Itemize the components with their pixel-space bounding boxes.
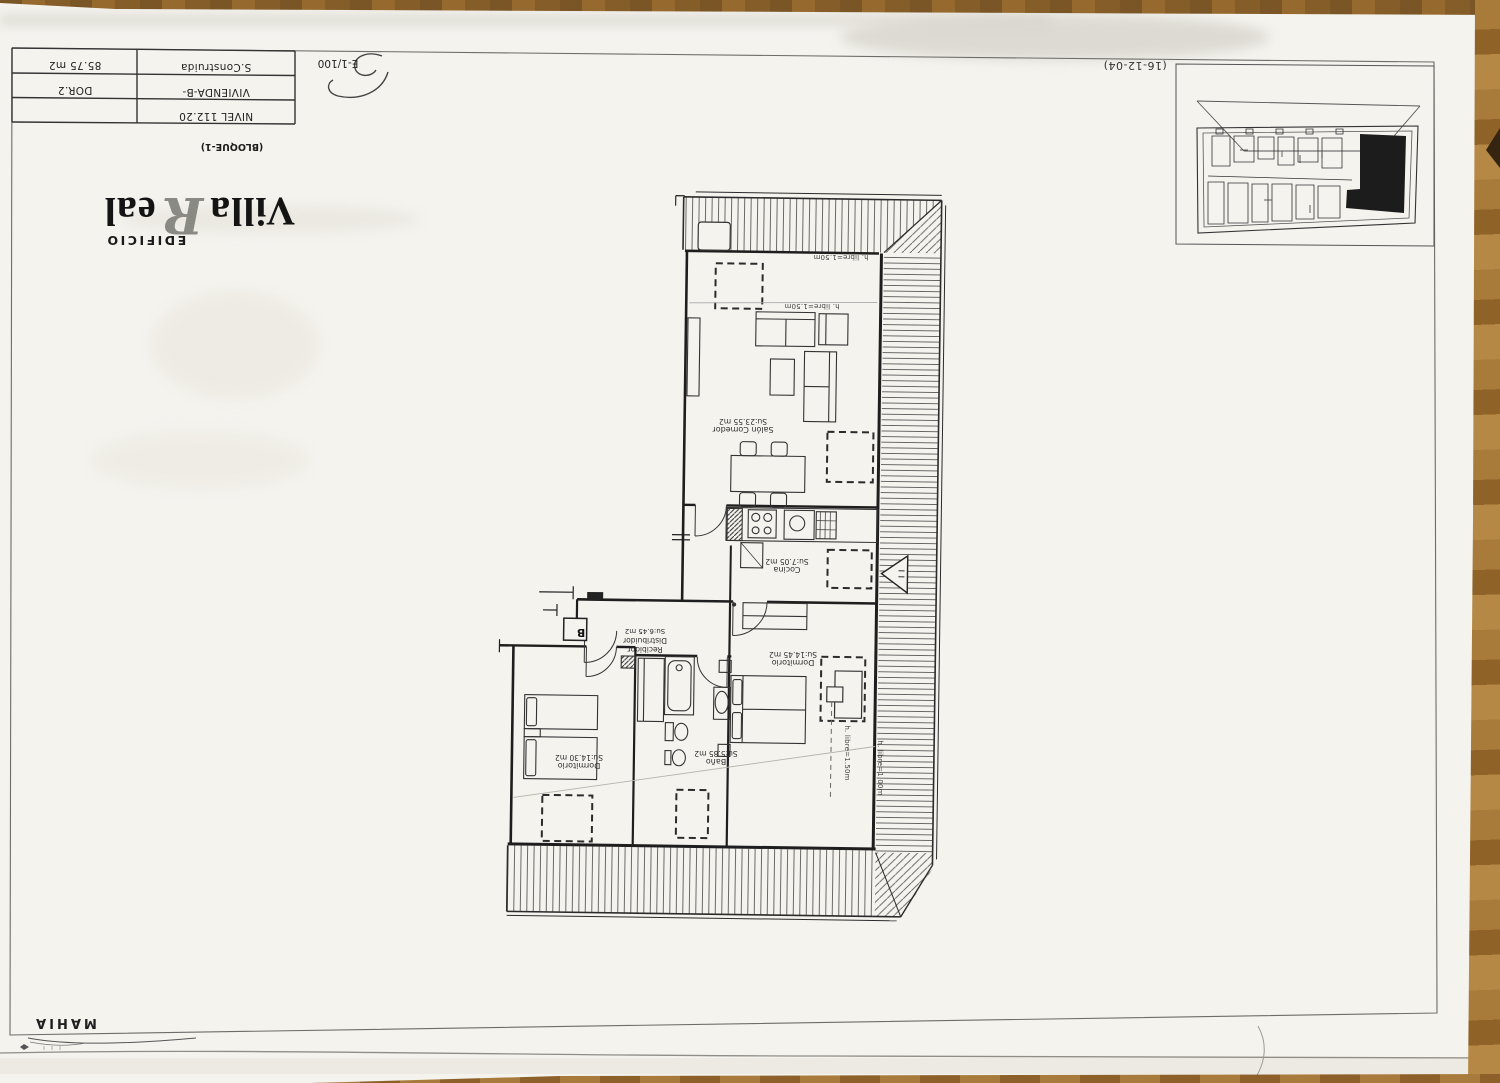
headroom-lines — [513, 297, 881, 802]
date-note: (16-12-04) — [1080, 55, 1190, 71]
bidet-icon — [665, 751, 671, 765]
single-bed-1 — [524, 695, 597, 730]
logo-stylized-r: R — [162, 195, 204, 235]
titleblock-unit-value: DOR.2 — [16, 76, 134, 96]
bedroom1-furniture — [718, 602, 807, 757]
room-label-salon: Salón Comedor Su:23.55 m2 — [692, 408, 794, 434]
headroom-note-top: h. libre=1.50m — [795, 251, 887, 261]
entrance-label: B — [570, 622, 592, 638]
titleblock-area-label: S.Construida — [140, 53, 292, 73]
headroom-note-bedroom: h. libre=1.50m — [841, 707, 851, 799]
dining-table — [731, 455, 805, 492]
room-label-dormitorio2: Dormitorio Su:14.30 m2 — [527, 744, 631, 770]
key-plan-highlighted-unit — [1346, 134, 1406, 213]
titleblock-level-label: NIVEL 112.20 — [140, 102, 292, 122]
headroom-note-wall: h. libre=1.00m — [874, 722, 884, 814]
scanned-floorplan-photo: { "sheet": { "date_note": "(16-12-04)", … — [0, 0, 1500, 1083]
headroom-note-salon: h. libre=1.50m — [766, 300, 858, 310]
logo-villa-text: Villa — [209, 188, 295, 235]
key-plan-rooms — [1208, 129, 1352, 224]
drawing-scale: E-1/100 — [299, 53, 377, 69]
titleblock-area-value: 85.75 m2 — [16, 51, 134, 71]
logo-eal-text: eal — [104, 188, 156, 235]
room-label-dormitorio1: Dormitorio Su:14.45 m2 — [742, 641, 844, 667]
sink-icon — [784, 510, 814, 539]
key-plan — [1176, 64, 1434, 246]
stair-landing-lines — [539, 586, 573, 616]
wardrobe — [637, 658, 664, 721]
author-signature: MAHIA — [18, 1012, 112, 1030]
edificio-villa-real-logo: EDIFICIO Villa R eal — [57, 150, 295, 248]
chimney — [698, 222, 730, 250]
room-label-bano: Baño Su:5.85 m2 — [680, 740, 752, 766]
paper-edge-lines — [0, 1026, 1500, 1083]
room-label-recibidor: Recibidor Distribuidor Su:6.45 m2 — [602, 615, 688, 653]
signature-flourish — [20, 1038, 196, 1050]
titleblock-unit-label: VIVIENDA-B- — [140, 78, 292, 98]
stove-icon — [748, 510, 776, 538]
toilet-icon — [665, 723, 673, 741]
room-label-cocina: Cocina Su:7.05 m2 — [748, 548, 826, 574]
